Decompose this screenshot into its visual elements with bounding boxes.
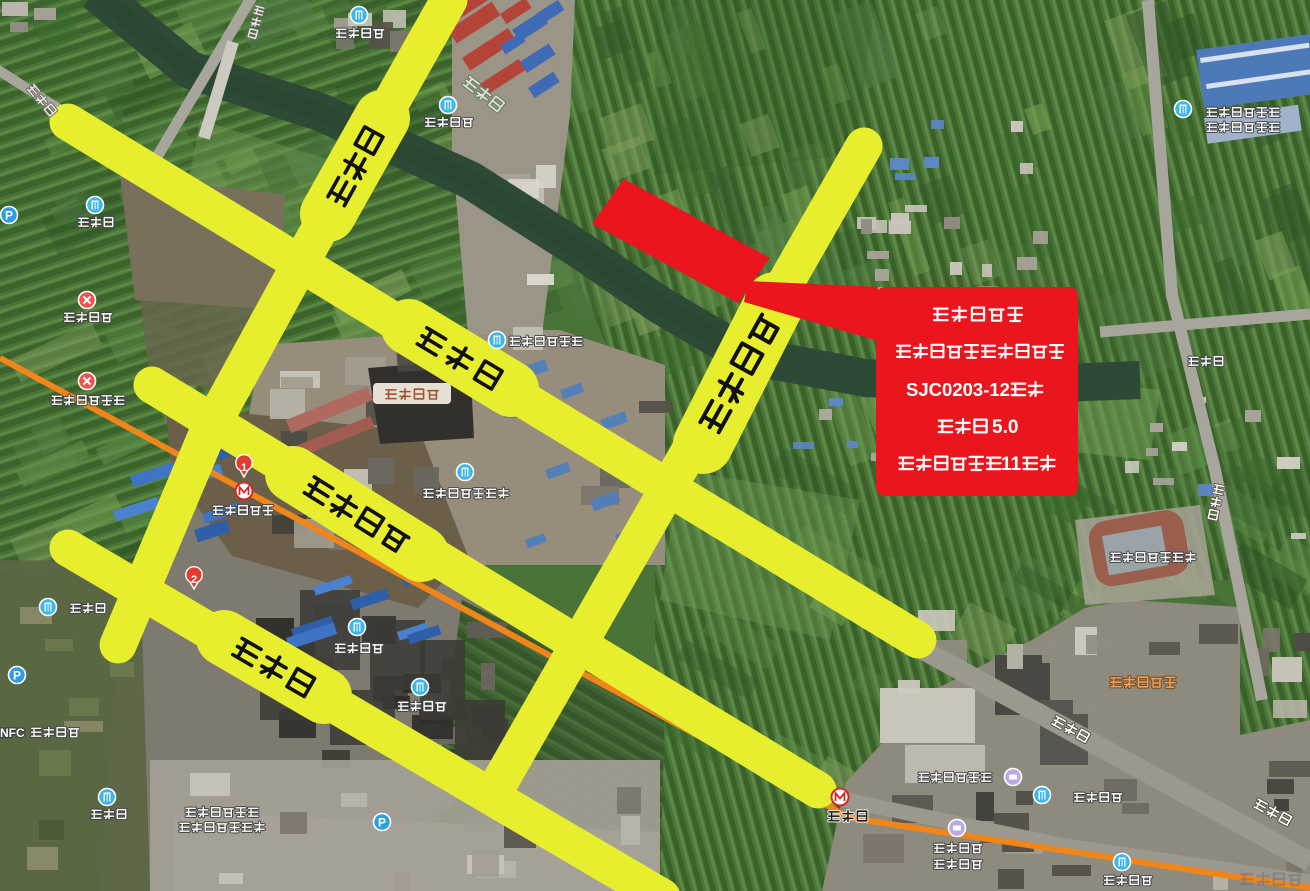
svg-text:P: P [5, 209, 13, 223]
svg-text:5.0: 5.0 [992, 417, 1018, 438]
svg-text:P: P [378, 816, 386, 830]
svg-text:11: 11 [1001, 454, 1022, 475]
svg-text:2: 2 [191, 574, 197, 586]
svg-text:P: P [13, 669, 21, 683]
svg-text:SJC0203-12: SJC0203-12 [906, 379, 1010, 400]
svg-text:1: 1 [241, 462, 247, 474]
svg-text:NFC: NFC [0, 726, 25, 740]
